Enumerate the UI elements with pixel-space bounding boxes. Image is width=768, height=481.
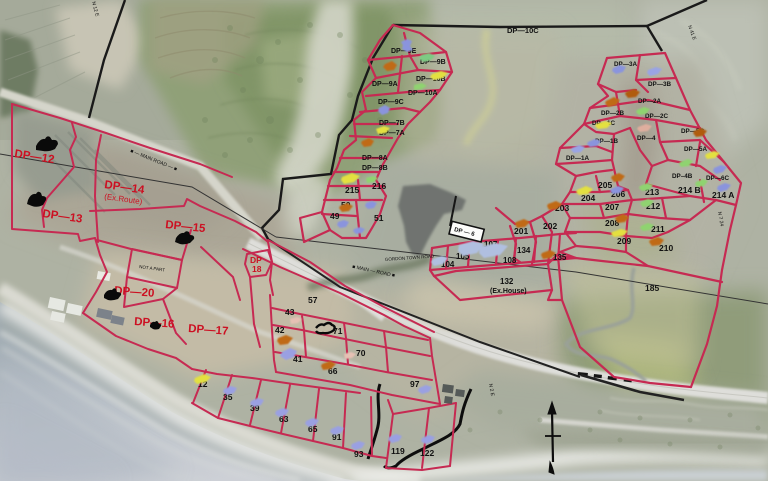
svg-text:DP—9A: DP—9A <box>372 81 398 88</box>
svg-text:DP—8A: DP—8A <box>362 155 388 162</box>
svg-text:108: 108 <box>503 256 517 265</box>
svg-text:70: 70 <box>356 348 366 358</box>
svg-text:DP—5A: DP—5A <box>684 146 708 153</box>
svg-text:DP—6C: DP—6C <box>706 175 730 182</box>
svg-text:DP—2B: DP—2B <box>601 110 625 117</box>
svg-text:210: 210 <box>659 243 673 253</box>
svg-text:135: 135 <box>553 253 567 262</box>
svg-text:134: 134 <box>517 246 531 255</box>
svg-text:DP—3B: DP—3B <box>648 81 672 88</box>
svg-text:DP—9C: DP—9C <box>378 99 404 106</box>
svg-text:93: 93 <box>354 449 364 459</box>
svg-text:DP–4B: DP–4B <box>672 173 693 180</box>
svg-text:DP—1A: DP—1A <box>566 155 590 162</box>
svg-text:42: 42 <box>275 325 285 335</box>
svg-text:(Ex.House): (Ex.House) <box>490 288 527 295</box>
svg-text:57: 57 <box>308 295 318 305</box>
svg-text:201: 201 <box>514 226 528 236</box>
svg-text:DP—10C: DP—10C <box>507 26 539 35</box>
svg-text:119: 119 <box>391 446 405 456</box>
svg-text:51: 51 <box>374 213 384 223</box>
svg-text:214 A: 214 A <box>712 190 734 200</box>
svg-text:DP—7B: DP—7B <box>379 120 405 127</box>
svg-text:97: 97 <box>410 379 420 389</box>
svg-text:132: 132 <box>500 277 514 286</box>
svg-text:DP—2A: DP—2A <box>638 98 662 105</box>
svg-text:216: 216 <box>372 181 386 191</box>
svg-text:207: 207 <box>605 202 619 212</box>
svg-text:DP—10A: DP—10A <box>408 90 438 97</box>
svg-text:DP—2C: DP—2C <box>645 113 669 120</box>
svg-text:43: 43 <box>285 307 295 317</box>
svg-text:49: 49 <box>330 211 340 221</box>
svg-text:122: 122 <box>420 448 434 458</box>
svg-text:DP—8B: DP—8B <box>362 165 388 172</box>
svg-text:215: 215 <box>345 185 359 195</box>
svg-text:18: 18 <box>252 264 262 274</box>
svg-text:202: 202 <box>543 221 557 231</box>
svg-text:209: 209 <box>617 236 631 246</box>
svg-text:185: 185 <box>645 283 659 293</box>
svg-text:DP—4: DP—4 <box>637 135 656 142</box>
